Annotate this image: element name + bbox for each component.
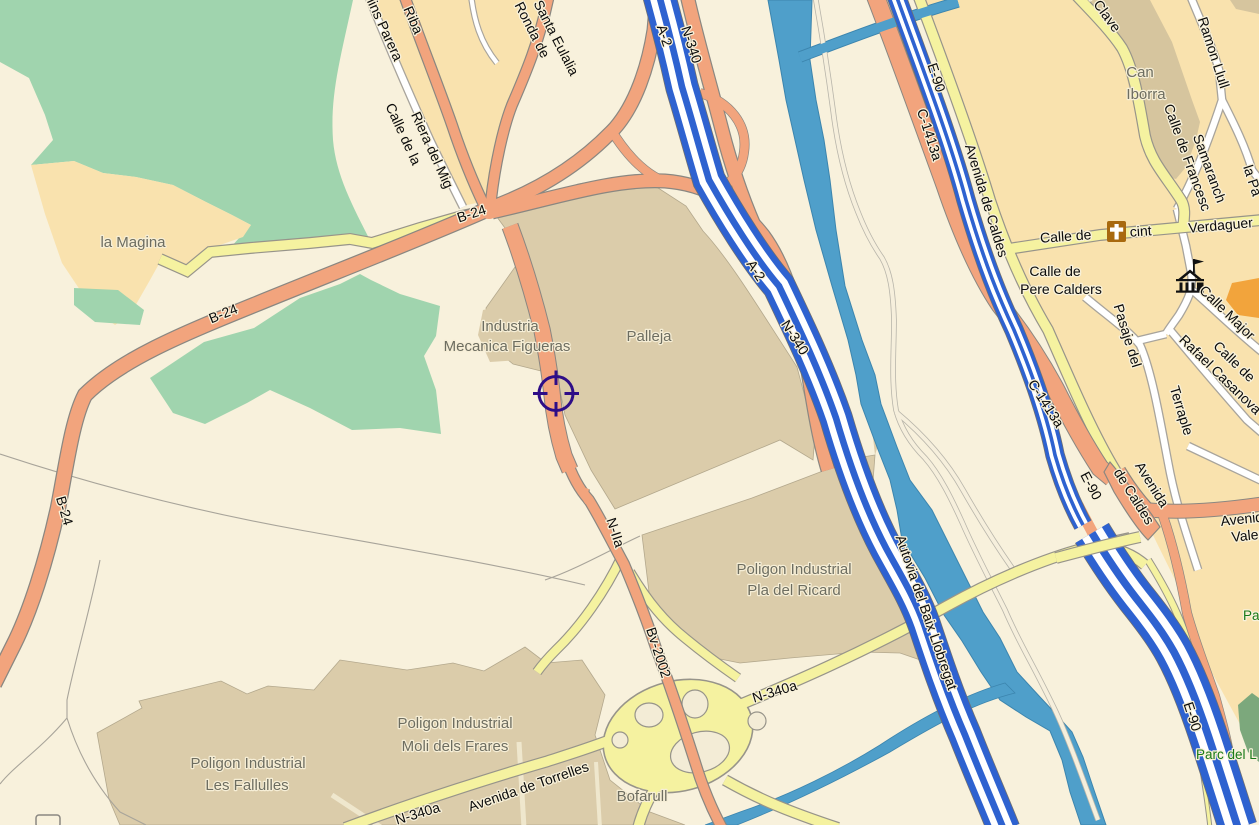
svg-text:Poligon Industrial: Poligon Industrial [736,561,851,578]
svg-text:cint: cint [1129,222,1152,239]
svg-text:Calle de: Calle de [1029,263,1081,279]
svg-text:Iborra: Iborra [1126,86,1166,103]
svg-text:Les Fallulles: Les Fallulles [205,777,288,794]
svg-text:Valen: Valen [1231,525,1259,545]
svg-text:Pla del Ricard: Pla del Ricard [747,582,840,599]
svg-text:Moli dels Frares: Moli dels Frares [402,738,509,755]
svg-text:Parc del L: Parc del L [1196,747,1257,762]
svg-text:Pere Calders: Pere Calders [1020,281,1102,297]
svg-text:la Magina: la Magina [100,234,166,251]
svg-text:Palleja: Palleja [626,328,672,345]
svg-text:Poligon Industrial: Poligon Industrial [190,755,305,772]
svg-text:Mecanica Figueras: Mecanica Figueras [444,338,571,355]
svg-text:Industria: Industria [481,318,539,335]
svg-text:Pa: Pa [1243,608,1259,623]
svg-text:Bofarull: Bofarull [617,788,668,805]
svg-text:Poligon Industrial: Poligon Industrial [397,715,512,732]
svg-text:Can: Can [1126,64,1154,81]
